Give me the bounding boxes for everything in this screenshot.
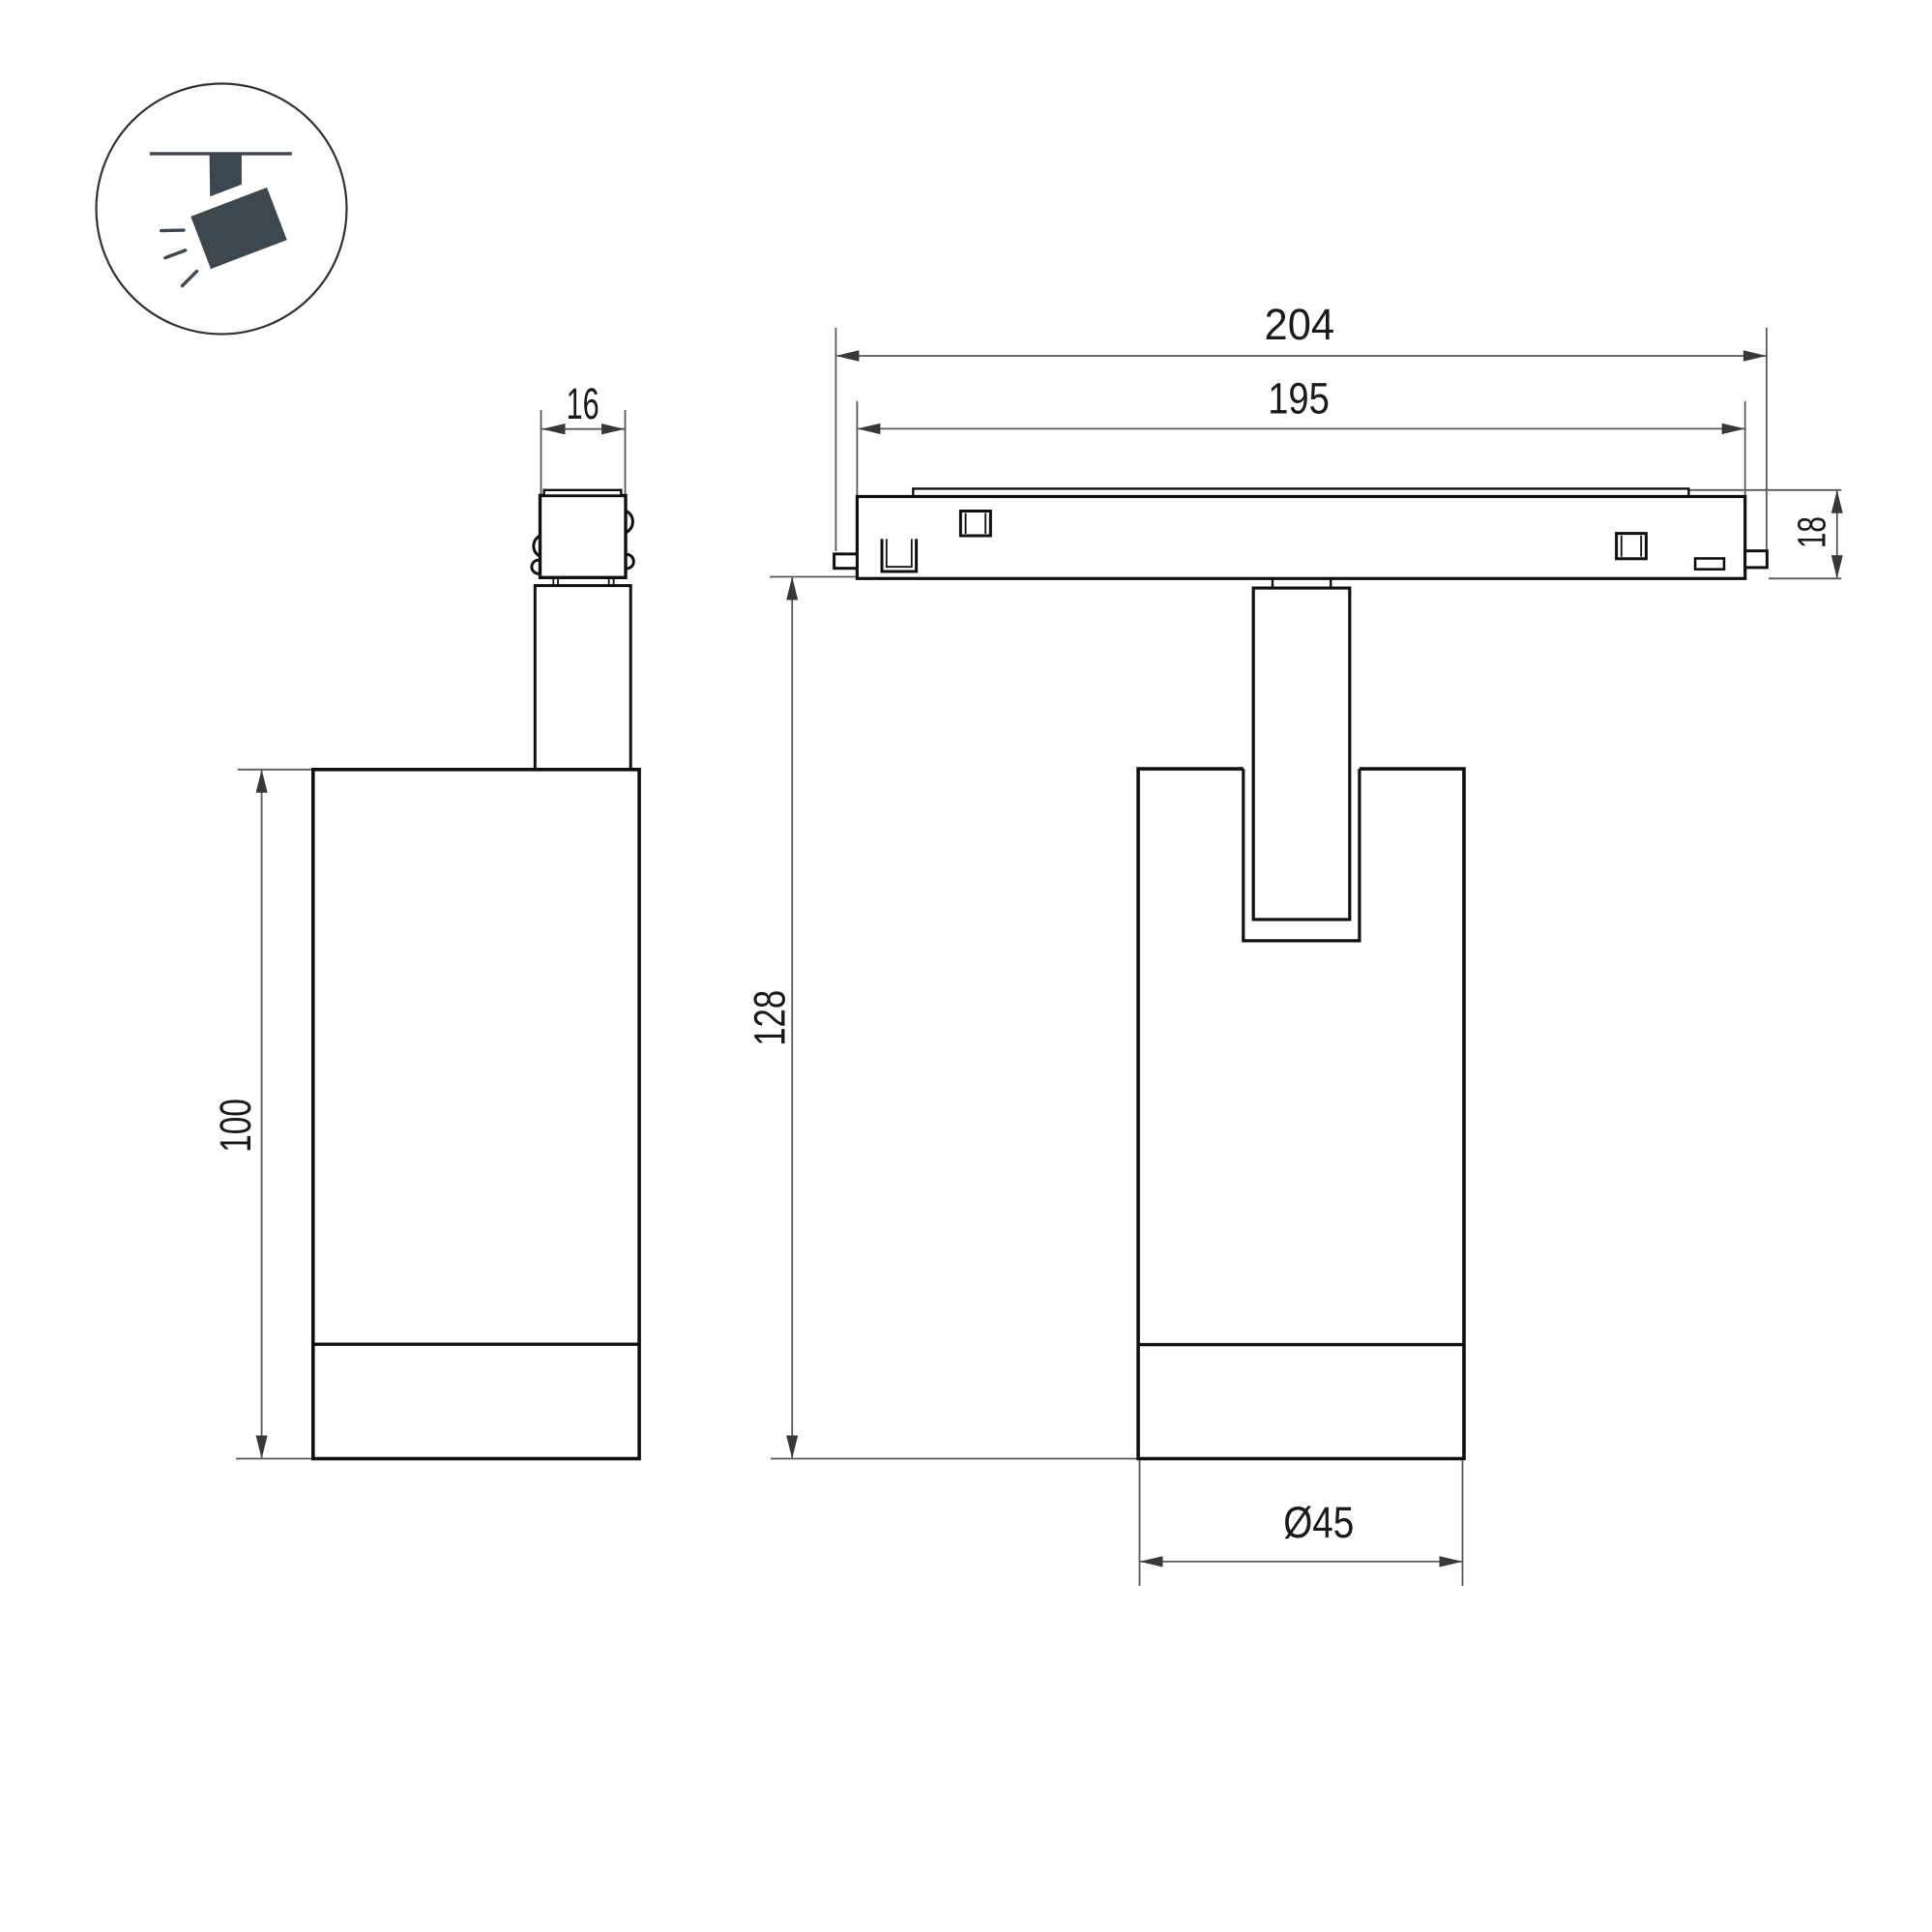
svg-text:18: 18	[1790, 516, 1834, 548]
svg-text:128: 128	[745, 990, 794, 1046]
svg-text:100: 100	[211, 1098, 260, 1153]
svg-text:16: 16	[567, 379, 600, 428]
svg-text:195: 195	[1268, 374, 1330, 424]
svg-text:Ø45: Ø45	[1283, 1498, 1354, 1547]
svg-text:204: 204	[1265, 300, 1335, 349]
